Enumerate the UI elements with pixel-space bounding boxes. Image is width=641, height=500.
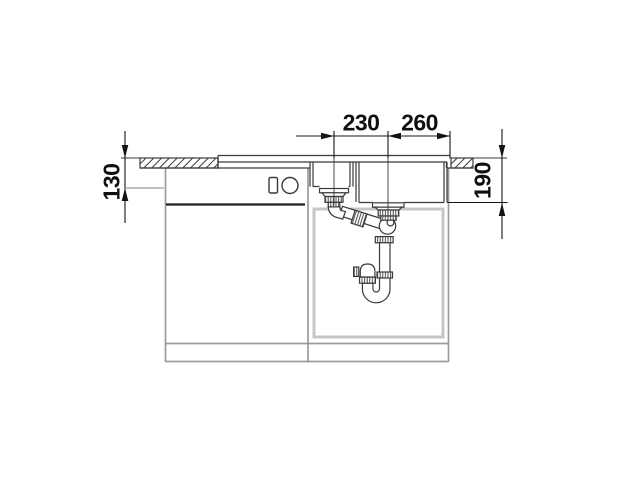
small-bowl-walls <box>310 162 353 187</box>
trap-outlet-cap <box>360 264 375 277</box>
trap-side-collar <box>354 267 359 276</box>
base-cabinet <box>166 168 449 362</box>
drawing-canvas: 230 260 130 190 <box>0 0 641 500</box>
trap-top-nut <box>375 237 393 243</box>
countertop <box>121 158 507 168</box>
strainer-nut <box>378 210 399 216</box>
main-bowl-walls <box>356 162 447 203</box>
trap-pipe-nut <box>377 272 393 278</box>
dimension-label-130: 130 <box>99 164 125 201</box>
trap-arm-nut <box>360 277 376 283</box>
drain-plumbing <box>320 189 405 303</box>
cabinet-walls <box>166 168 449 362</box>
dimension-label-230: 230 <box>343 110 380 136</box>
countertop-left-section <box>140 158 218 168</box>
front-panel-controls <box>269 178 298 194</box>
control-slot <box>269 178 278 194</box>
control-knob <box>282 178 298 194</box>
dimension-top: 230 260 <box>296 110 450 159</box>
dimension-right: 190 <box>447 129 508 239</box>
dimension-annotations: 230 260 130 190 <box>99 110 508 240</box>
dimension-label-190: 190 <box>470 162 496 199</box>
sink-technical-drawing: 230 260 130 190 <box>0 0 641 500</box>
strainer-collar <box>381 216 396 220</box>
dimension-left: 130 <box>99 131 165 223</box>
dimension-label-260: 260 <box>401 110 438 136</box>
siphon-trap <box>354 237 393 303</box>
